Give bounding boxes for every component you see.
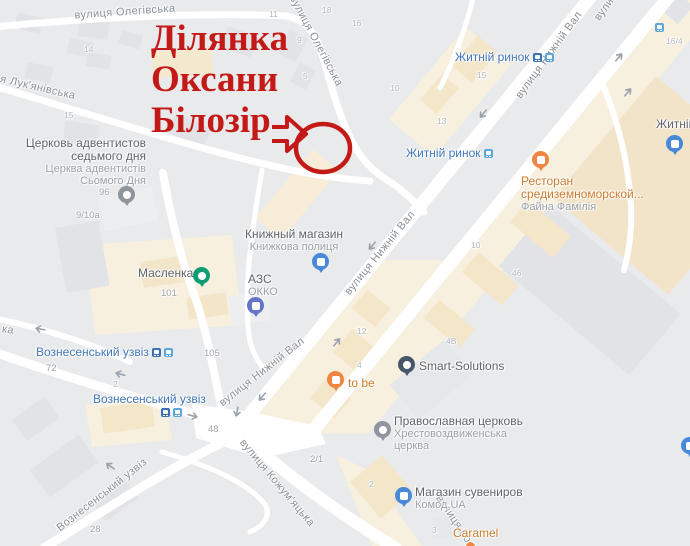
fuel-pump-icon	[252, 302, 260, 310]
tram-badge-icon[interactable]	[545, 53, 554, 62]
house-number: 96	[99, 187, 110, 198]
tram-badge-icon[interactable]	[484, 149, 493, 158]
transit-stop-voznesenskyi-2[interactable]: Вознесенський узвіз	[93, 392, 206, 417]
poi-bookstore[interactable]: Книжный магазин Книжкова полиця	[245, 228, 343, 253]
church-icon	[379, 426, 387, 434]
poi-adventist-church[interactable]: Церковь адвентистов седьмого дня Церква …	[18, 137, 146, 187]
tram-badge-icon[interactable]	[655, 23, 664, 32]
smart-solutions-pin[interactable]	[398, 356, 415, 373]
shopping-bag-icon	[317, 258, 325, 266]
house-number: 3	[432, 525, 437, 535]
house-number: 13	[437, 116, 446, 126]
annotation-title: Ділянка Оксани Білозір	[151, 18, 288, 141]
maslenka-pin[interactable]	[193, 267, 210, 284]
restaurant-icon	[537, 156, 545, 164]
house-number: 5	[303, 71, 308, 81]
house-number: 15	[64, 110, 73, 120]
house-number: 12	[357, 326, 366, 336]
shopping-bag-icon	[686, 442, 690, 450]
church-icon	[123, 191, 131, 199]
poi-icon	[198, 272, 206, 280]
house-number: 14	[84, 44, 93, 54]
house-number: 15	[477, 70, 486, 80]
house-number: 72	[46, 363, 57, 374]
zhytnii-market-pin[interactable]	[666, 135, 683, 152]
house-number: 9	[297, 35, 302, 45]
poi-orthodox-church[interactable]: Православная церковь Хрестовоздвиженська…	[394, 415, 523, 452]
transit-stop-zhytnii-rynok-1[interactable]: Житній ринок	[455, 50, 554, 64]
caramel-dot-pin[interactable]	[465, 541, 476, 546]
church-pin[interactable]	[118, 186, 135, 203]
house-number: 10	[471, 240, 480, 250]
house-number: 9/10а	[76, 210, 100, 221]
metro-badge-icon[interactable]	[152, 348, 161, 357]
transit-stop-zhytnii-rynok-2[interactable]: Житній ринок	[406, 146, 493, 160]
transit-stop-label[interactable]: Житній ринок	[455, 50, 530, 64]
poi-maslenka[interactable]: Масленка	[138, 267, 193, 280]
restaurant-pin[interactable]	[532, 151, 549, 168]
house-number: 4	[357, 360, 362, 370]
to-be-pin[interactable]	[327, 371, 344, 388]
tram-badge-icon[interactable]	[164, 348, 173, 357]
house-number: 2/1	[310, 454, 323, 465]
poi-to-be[interactable]: to be	[348, 377, 375, 390]
tram-badge-icon[interactable]	[173, 408, 182, 417]
bookstore-pin[interactable]	[312, 253, 329, 270]
house-number: 2	[369, 479, 374, 489]
annotation-title-line: Білозір	[151, 100, 288, 141]
transit-stop-label[interactable]: Вознесенський узвіз	[36, 345, 149, 359]
transit-stop-voznesenskyi-1[interactable]: Вознесенський узвіз	[36, 345, 173, 359]
metro-badge-icon[interactable]	[161, 408, 170, 417]
transit-stop-label[interactable]: Житній ринок	[406, 146, 481, 160]
house-number: 10	[390, 83, 399, 93]
house-number: 105	[204, 348, 220, 359]
house-number: 16/4	[666, 36, 683, 46]
shopping-cart-icon	[671, 140, 679, 148]
gas-station-pin[interactable]	[247, 297, 264, 314]
house-number: 48	[208, 424, 219, 435]
transit-stop-label[interactable]: Вознесенський узвіз	[93, 392, 206, 406]
poi-smart-solutions[interactable]: Smart-Solutions	[419, 360, 504, 373]
poi-restaurant[interactable]: Ресторан средиземноморской... Файна Фамі…	[521, 175, 644, 213]
poi-icon	[403, 361, 411, 369]
house-number: 18	[322, 5, 331, 15]
house-number: 16	[352, 18, 361, 28]
metro-badge-icon[interactable]	[533, 53, 542, 62]
poi-souvenir-shop[interactable]: Магазин сувениров Комод.UA	[415, 486, 523, 511]
church-pin[interactable]	[374, 421, 391, 438]
shopping-bag-icon	[400, 492, 408, 500]
poi-gas-station[interactable]: АЗС ОККО	[248, 273, 278, 298]
street-label-fragment-ka: ка	[1, 323, 15, 337]
house-number: 46	[512, 268, 521, 278]
house-number: 101	[161, 288, 177, 299]
house-number: 2	[113, 379, 118, 389]
poi-zhytnii-market[interactable]: Житній	[656, 118, 690, 131]
house-number: 4В	[446, 336, 456, 346]
poi-caramel[interactable]: Caramel	[453, 527, 498, 540]
annotation-title-line: Ділянка	[151, 18, 288, 59]
map-canvas[interactable]: вулиця Олегівська вулиця Олегівська вули…	[0, 0, 690, 546]
house-number: 28	[90, 524, 101, 535]
annotation-title-line: Оксани	[151, 59, 288, 100]
restaurant-icon	[332, 376, 340, 384]
souvenir-shop-pin[interactable]	[395, 487, 412, 504]
